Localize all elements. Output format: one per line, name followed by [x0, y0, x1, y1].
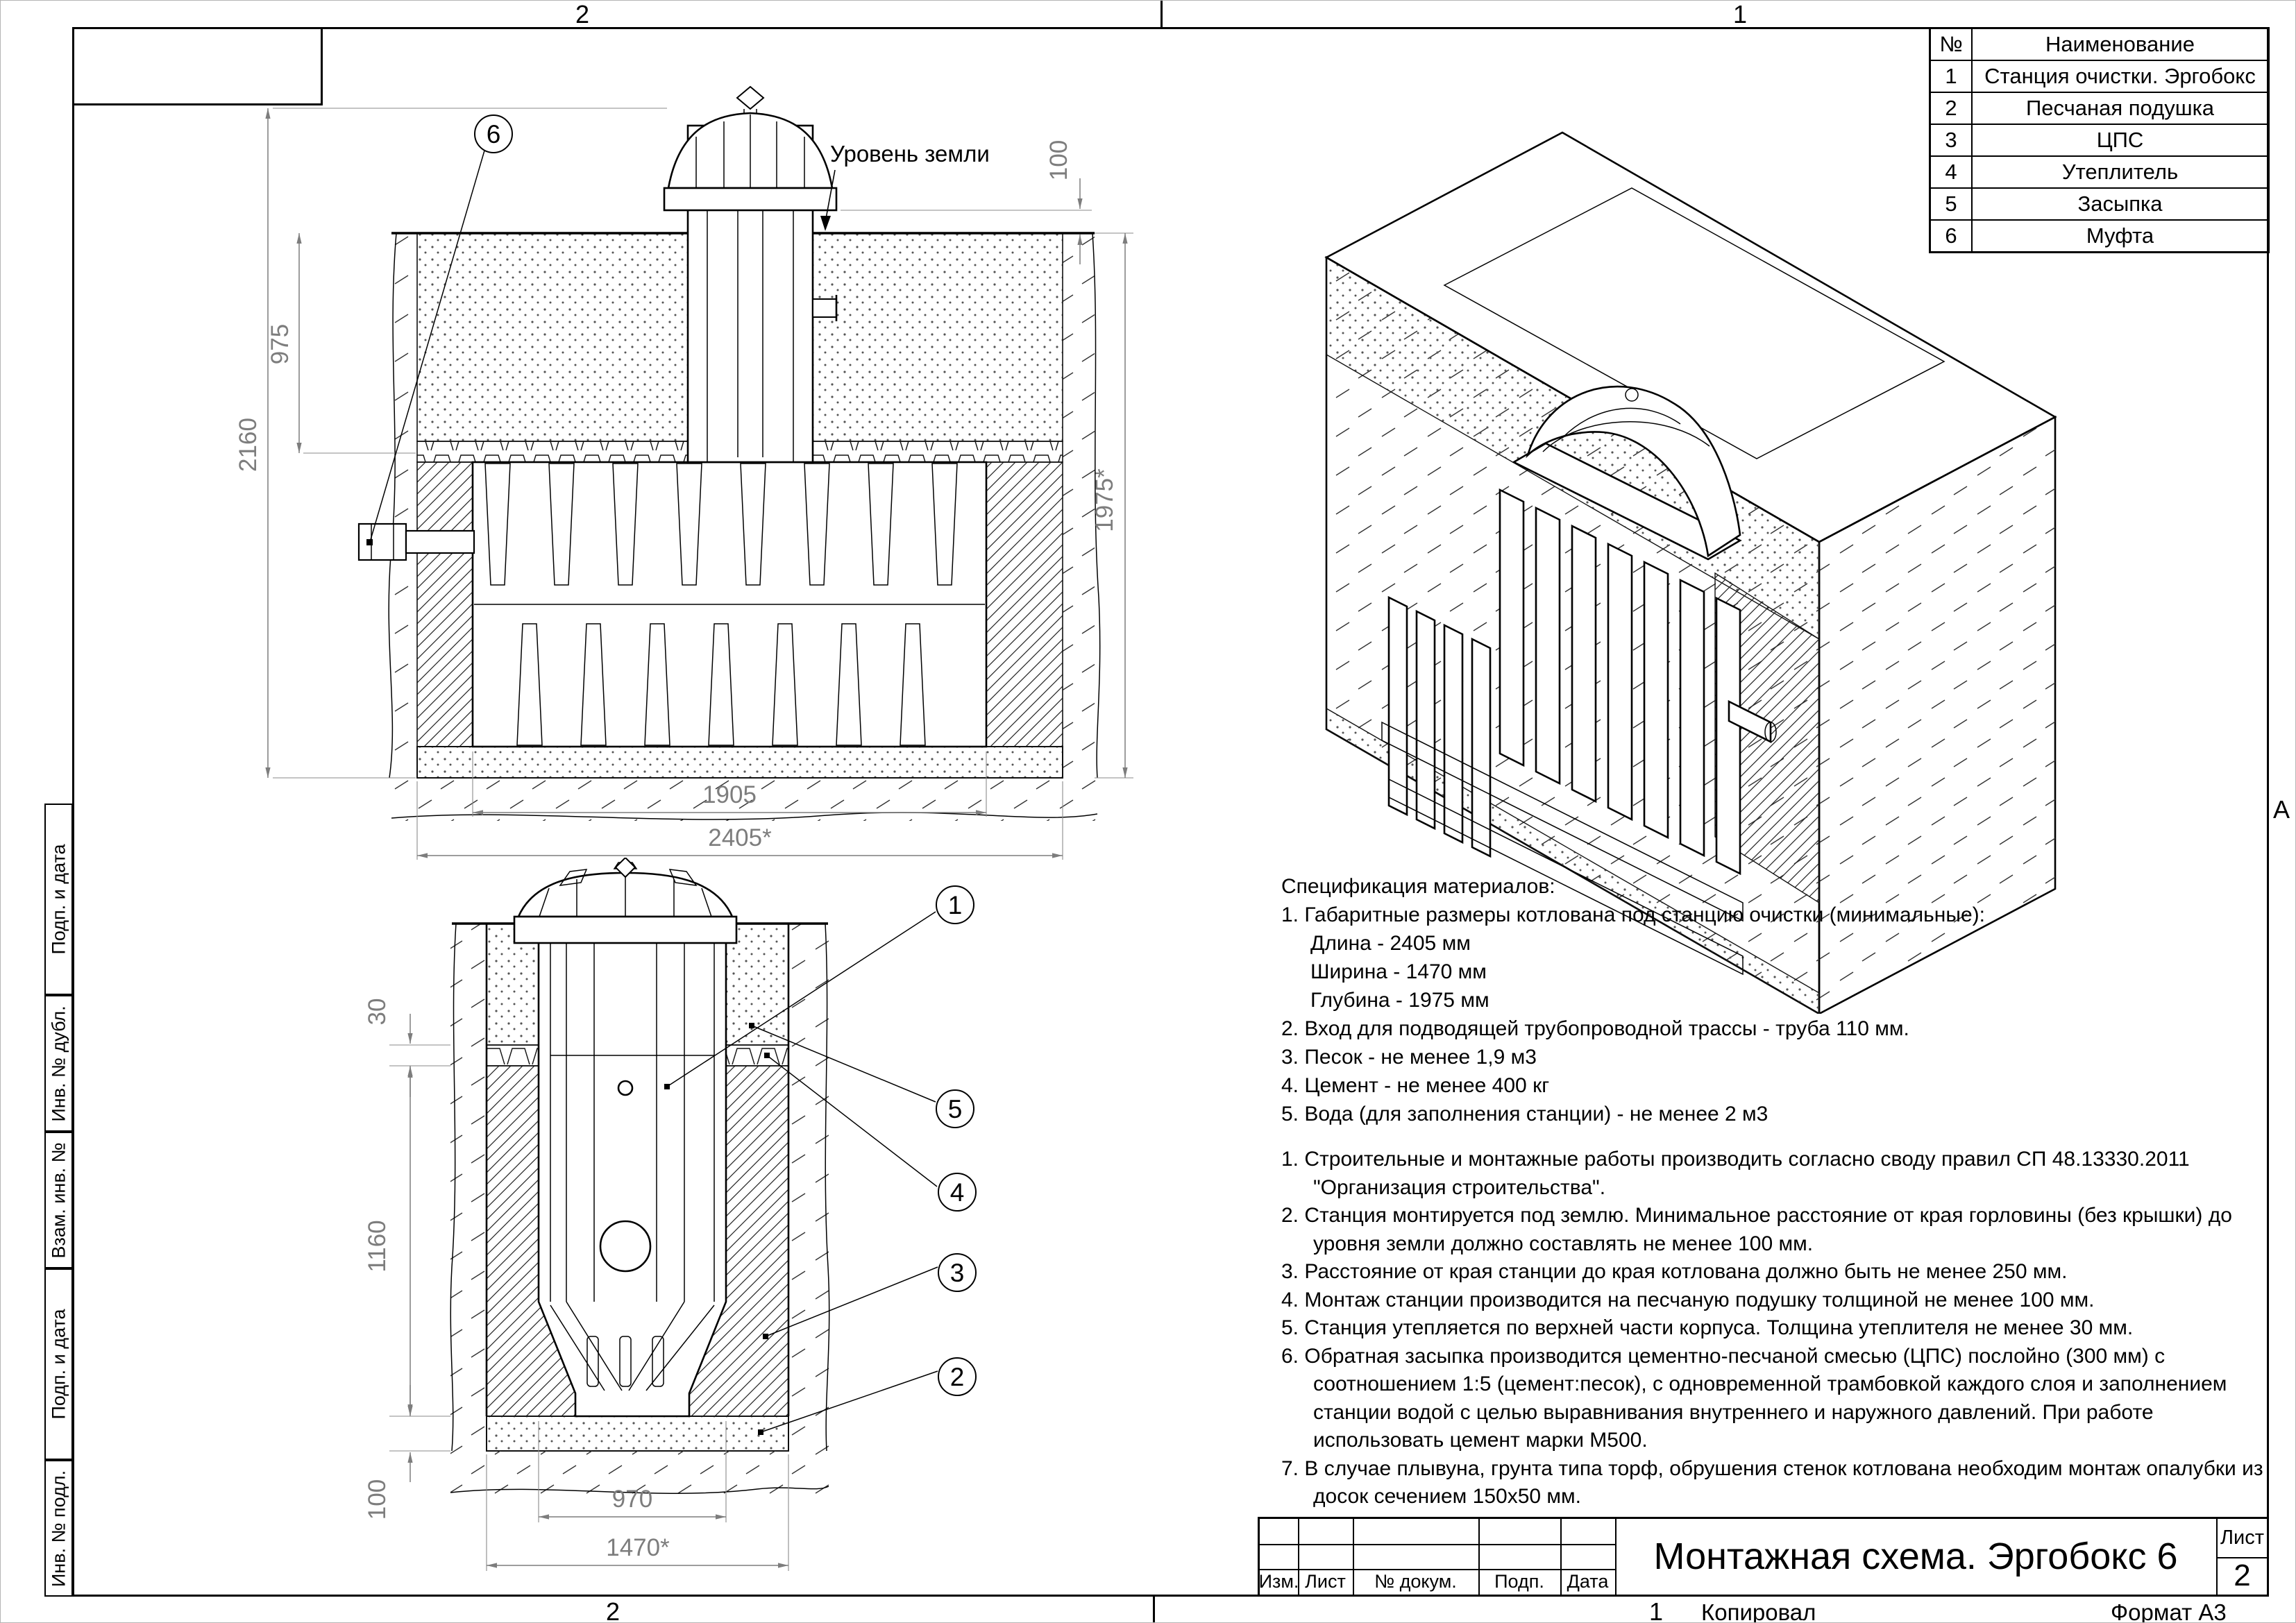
col-date: Дата: [1560, 1569, 1615, 1594]
side-section-drawing: 2160 975 100 1975* 1905 2405* Уровень зе…: [230, 56, 1160, 889]
dim-station-width: 970: [612, 1486, 652, 1513]
dim-pit-width: 1470*: [606, 1534, 670, 1561]
neck-stub: [813, 299, 836, 317]
note-item: 1. Строительные и монтажные работы произ…: [1281, 1146, 2275, 1202]
side-label: Подп. и дата: [48, 1309, 69, 1419]
spec-line: 2. Вход для подводящей трубопроводной тр…: [1281, 1014, 2274, 1043]
footer-copy-label: Копировал: [1701, 1599, 1816, 1623]
inlet-pipe: [406, 531, 474, 553]
dim-cushion: 100: [364, 1479, 391, 1520]
col-izm: Изм.: [1260, 1569, 1298, 1594]
note-item: 4. Монтаж станции производится на песчан…: [1281, 1286, 2275, 1315]
station-lid-flange: [664, 188, 836, 210]
side-label: Инв. № дубл.: [48, 1005, 69, 1121]
dim-depth-top: 975: [267, 324, 294, 364]
col-header-name: Наименование: [1973, 29, 2268, 60]
soil-band-left: [450, 924, 487, 1451]
callout-3: 3: [950, 1259, 965, 1287]
zone-top-2: 2: [575, 2, 589, 27]
front-section-drawing: 30 1160 100 970 1470* 1 5 4 3 2: [306, 858, 1021, 1621]
dim-body-depth: 1160: [364, 1220, 391, 1272]
footer-format-label: Формат А3: [2111, 1599, 2227, 1623]
side-box-vzam-inv: Взам. инв. №: [44, 1132, 73, 1268]
notes-block: 1. Строительные и монтажные работы произ…: [1281, 1146, 2275, 1511]
callout-1: 1: [948, 891, 963, 919]
callout-5: 5: [948, 1095, 963, 1123]
note-item: 5. Станция утепляется по верхней части к…: [1281, 1314, 2275, 1343]
side-label: Подп. и дата: [48, 844, 69, 954]
dim-height-total: 2160: [235, 418, 262, 472]
iso-station-ribs: [1500, 490, 1523, 765]
coupling: [359, 524, 406, 560]
side-box-podp-data-1: Подп. и дата: [44, 804, 73, 995]
side-label: Взам. инв. №: [48, 1142, 69, 1258]
zone-tick-top: [1160, 1, 1163, 27]
side-box-inv-dubl: Инв. № дубл.: [44, 995, 73, 1132]
callout-4: 4: [950, 1178, 965, 1207]
drawing-sheet: 2 1 2 1 А Подп. и дата Инв. № дубл. Взам…: [0, 0, 2296, 1623]
side-box-inv-podl: Инв. № подл.: [44, 1460, 73, 1597]
table-row: 1Станция очистки. Эргобокс: [1931, 61, 2268, 93]
ground-level-label: Уровень земли: [830, 141, 990, 167]
spec-title: Спецификация материалов:: [1281, 872, 2274, 901]
side-label: Инв. № подл.: [48, 1470, 69, 1586]
spec-line: 3. Песок - не менее 1,9 м3: [1281, 1043, 2274, 1071]
col-sign: Подп.: [1478, 1569, 1560, 1594]
soil-band-right: [1063, 233, 1095, 778]
note-item: 6. Обратная засыпка производится цементн…: [1281, 1343, 2275, 1455]
row-no: 1: [1931, 61, 1973, 92]
sand-cushion: [487, 1416, 788, 1451]
callout-6: 6: [487, 120, 501, 148]
col-list: Лист: [1298, 1569, 1353, 1594]
station-lid-flange: [514, 917, 736, 943]
spec-line: Ширина - 1470 мм: [1281, 958, 2274, 986]
spec-block: Спецификация материалов: 1. Габаритные р…: [1281, 872, 2274, 1128]
spec-line: Длина - 2405 мм: [1281, 929, 2274, 958]
side-box-podp-data-2: Подп. и дата: [44, 1268, 73, 1460]
drawing-title: Монтажная схема. Эргобокс 6: [1615, 1519, 2216, 1594]
parts-table-header: № Наименование: [1931, 29, 2268, 61]
note-item: 2. Станция монтируется под землю. Минима…: [1281, 1202, 2275, 1258]
dim-insulation: 30: [364, 999, 391, 1026]
spec-line: 5. Вода (для заполнения станции) - не ме…: [1281, 1100, 2274, 1128]
zone-tick-bottom: [1153, 1597, 1155, 1623]
dim-station-length: 1905: [702, 781, 757, 808]
zone-bottom-1: 1: [1649, 1599, 1663, 1623]
spec-line: Глубина - 1975 мм: [1281, 986, 2274, 1014]
callout-2: 2: [950, 1363, 965, 1391]
dim-cover: 100: [1045, 140, 1072, 180]
title-block: Изм. Лист № докум. Подп. Дата Монтажная …: [1258, 1517, 2269, 1597]
soil-band-right: [788, 924, 829, 1451]
spec-line: 4. Цемент - не менее 400 кг: [1281, 1071, 2274, 1100]
zone-letter-a: А: [2273, 797, 2290, 822]
sheet-number: 2: [2216, 1557, 2268, 1594]
lid-finial: [737, 87, 763, 109]
sheet-word: Лист: [2216, 1519, 2268, 1557]
col-doc: № докум.: [1353, 1569, 1478, 1594]
spec-line: 1. Габаритные размеры котлована под стан…: [1281, 901, 2274, 929]
dim-pit-length: 2405*: [708, 824, 772, 851]
soil-band-left: [391, 233, 417, 778]
note-item: 7. В случае плывуна, грунта типа торф, о…: [1281, 1455, 2275, 1511]
note-item: 3. Расстояние от края станции до края ко…: [1281, 1258, 2275, 1286]
dim-pit-depth: 1975*: [1091, 468, 1118, 532]
row-name: Станция очистки. Эргобокс: [1973, 61, 2268, 92]
sand-cushion: [417, 747, 1063, 778]
zone-top-1: 1: [1733, 2, 1747, 27]
col-header-no: №: [1931, 29, 1973, 60]
